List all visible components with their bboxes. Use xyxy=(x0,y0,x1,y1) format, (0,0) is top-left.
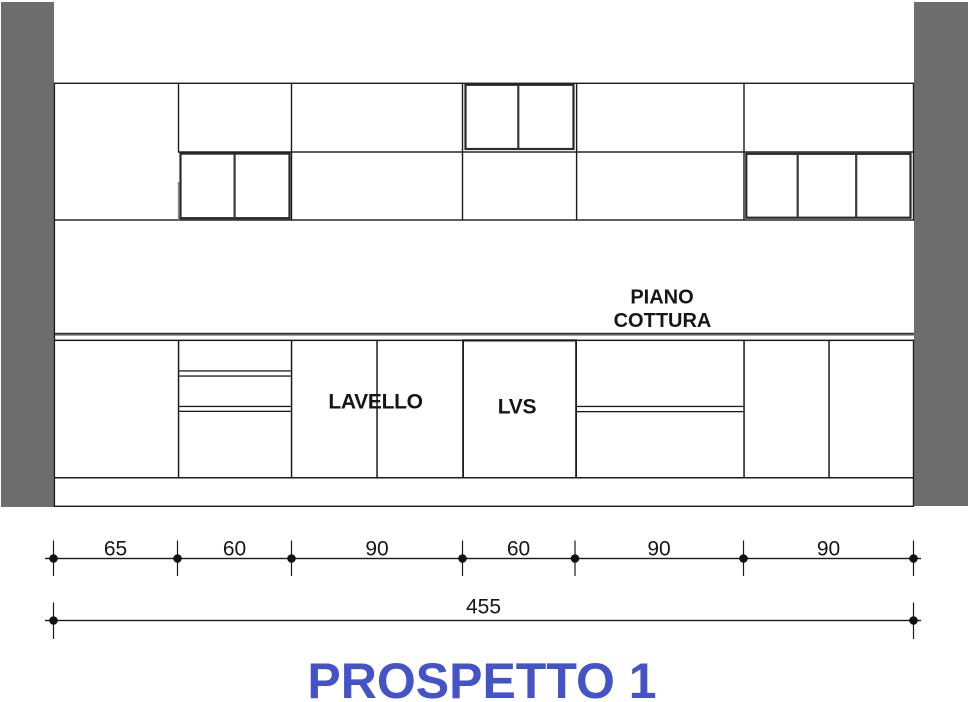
svg-text:LVS: LVS xyxy=(498,395,537,418)
svg-text:90: 90 xyxy=(365,538,388,561)
svg-text:455: 455 xyxy=(466,596,501,619)
svg-text:COTTURA: COTTURA xyxy=(614,310,712,332)
svg-text:90: 90 xyxy=(817,538,840,561)
svg-text:LAVELLO: LAVELLO xyxy=(328,390,422,413)
svg-text:90: 90 xyxy=(647,538,670,561)
svg-text:60: 60 xyxy=(507,538,530,561)
svg-text:65: 65 xyxy=(104,538,127,561)
svg-text:PROSPETTO 1: PROSPETTO 1 xyxy=(307,653,656,702)
svg-text:60: 60 xyxy=(223,538,246,561)
svg-text:PIANO: PIANO xyxy=(630,287,693,309)
